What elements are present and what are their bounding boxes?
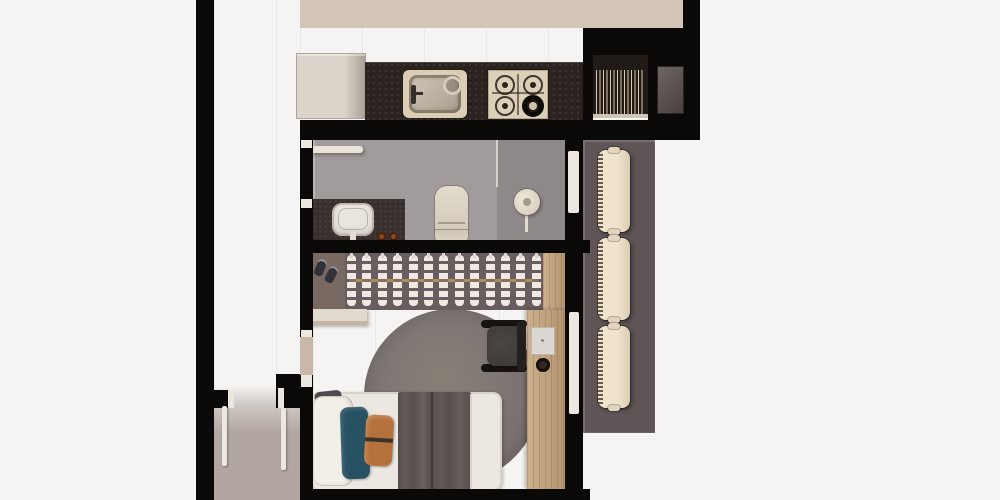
fridge-cabinet	[297, 54, 365, 118]
wall-left	[196, 0, 214, 500]
stove-burner	[523, 75, 543, 95]
duvet-crease	[470, 394, 472, 489]
wall-kitchen-south	[300, 120, 648, 140]
clothes-hanger	[486, 255, 495, 306]
clothes-hanger	[470, 255, 479, 306]
wardrobe-side-panel	[543, 252, 565, 310]
radiator-cap-top	[608, 235, 620, 241]
toilet	[435, 186, 468, 243]
clothes-hanger	[424, 255, 433, 306]
door-jamb	[301, 140, 312, 148]
wall-right-top	[683, 0, 700, 28]
vent-grille-base	[593, 114, 648, 118]
clothes-hanger	[393, 255, 402, 306]
wall-niche-top	[583, 28, 648, 55]
wall-niche-left	[583, 55, 593, 140]
kitchen-sink	[403, 70, 467, 118]
door-jamb	[301, 330, 312, 337]
radiator-fins	[598, 330, 603, 404]
clothes-hanger	[516, 255, 525, 306]
sink-drain	[443, 76, 462, 95]
radiator-cap-bottom	[608, 405, 620, 411]
pillow-orange	[364, 414, 395, 466]
radiator	[598, 150, 630, 232]
clothes-hanger	[455, 255, 464, 306]
stove-burner	[522, 95, 544, 117]
sink-faucet	[411, 85, 416, 104]
clothes-hanger	[378, 255, 387, 306]
clothes-hanger	[362, 255, 371, 306]
desk-mug	[536, 358, 550, 372]
stove-burner	[495, 96, 515, 116]
door-jamb	[278, 388, 284, 408]
floorplan-render	[0, 0, 1000, 500]
wardrobe	[345, 252, 543, 310]
door-jamb	[301, 199, 312, 208]
service-shaft	[657, 66, 684, 114]
radiator	[598, 238, 630, 320]
radiator-fins	[598, 154, 603, 228]
door-jamb	[228, 390, 234, 408]
chair-backrest	[517, 321, 526, 371]
wall-bathroom-south	[300, 240, 590, 253]
bedroom-doorway	[300, 337, 313, 375]
stove-burner	[495, 75, 515, 95]
gas-cooktop	[488, 70, 548, 119]
entry-door-leaf	[281, 408, 286, 470]
clothes-hanger	[409, 255, 418, 306]
kitchen-counter	[365, 62, 585, 120]
door-jamb	[301, 375, 312, 387]
shower-head	[514, 189, 540, 215]
blanket	[398, 392, 471, 491]
bathroom-door-leaf	[568, 151, 579, 213]
vent-grille-slats	[596, 70, 645, 114]
clothes-hanger	[532, 255, 541, 306]
bench	[307, 309, 367, 325]
shower-pipe	[525, 214, 528, 232]
radiator	[598, 326, 630, 408]
vent-grille	[593, 53, 648, 118]
kitchen-floor-upper	[300, 0, 685, 28]
radiator-cap-top	[608, 323, 620, 329]
service-corridor-floor	[583, 140, 655, 433]
clothes-hanger	[347, 255, 356, 306]
bed	[311, 392, 502, 491]
towel-rail	[309, 146, 363, 153]
clothes-hanger	[439, 255, 448, 306]
radiator-cap-top	[608, 147, 620, 153]
wall-bathroom-left	[300, 130, 313, 500]
radiator-fins	[598, 242, 603, 316]
desk-paper	[531, 327, 555, 355]
shower-glass-panel	[496, 140, 498, 187]
wall-bedroom-bottom	[300, 489, 590, 500]
entry-door-leaf	[222, 406, 227, 466]
bedroom-door-leaf	[569, 312, 579, 414]
clothes-hanger	[501, 255, 510, 306]
